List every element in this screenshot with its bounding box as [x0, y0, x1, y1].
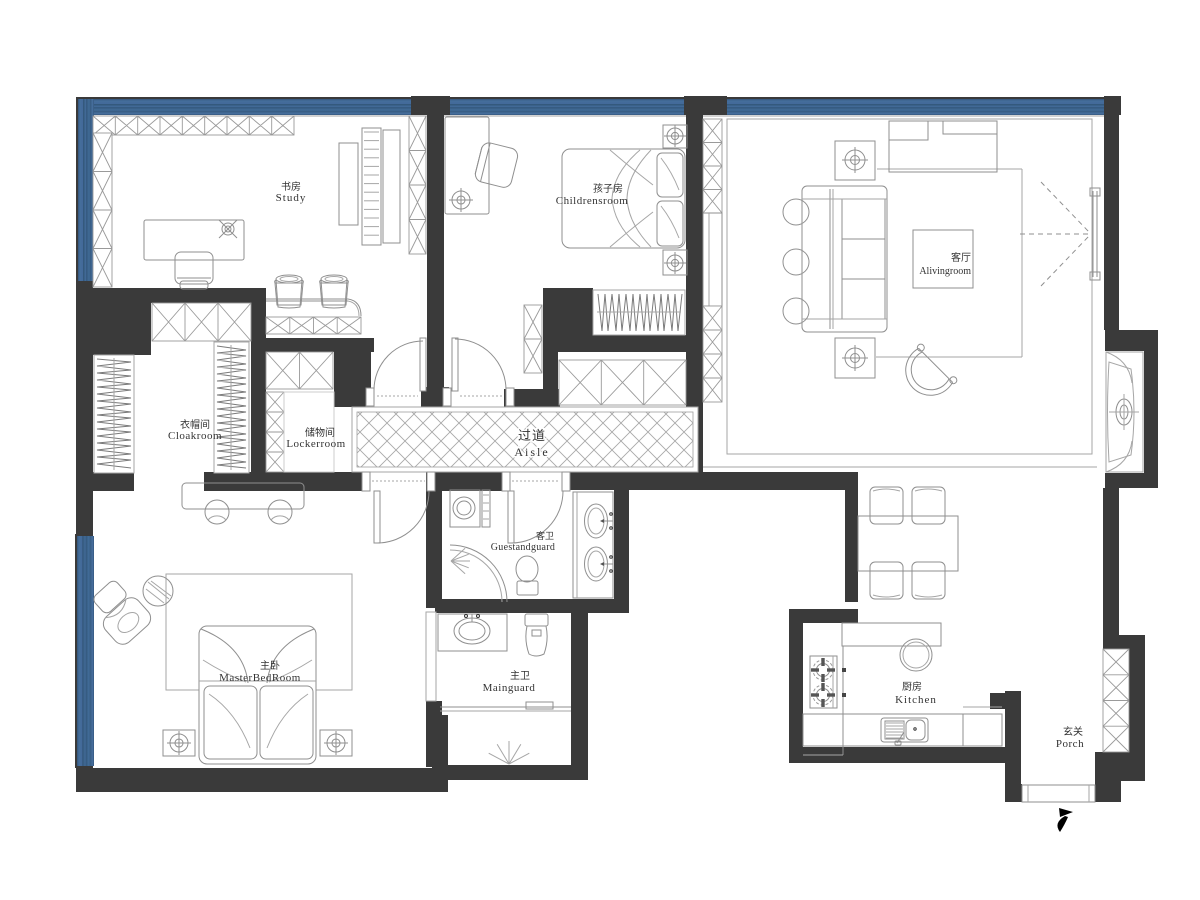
- svg-text:MasterBedRoom: MasterBedRoom: [219, 672, 301, 684]
- svg-text:Aisle: Aisle: [514, 445, 549, 459]
- svg-text:Alivingroom: Alivingroom: [919, 266, 971, 277]
- svg-text:Childrensroom: Childrensroom: [556, 195, 629, 207]
- svg-text:厨房: 厨房: [902, 680, 922, 693]
- svg-text:客卫: 客卫: [536, 530, 554, 541]
- svg-text:Porch: Porch: [1056, 738, 1084, 750]
- svg-text:主卧: 主卧: [260, 659, 280, 672]
- svg-text:过道: 过道: [518, 428, 546, 443]
- svg-text:主卫: 主卫: [510, 670, 530, 682]
- svg-text:孩子房: 孩子房: [593, 182, 623, 195]
- svg-text:Lockerroom: Lockerroom: [286, 438, 345, 450]
- svg-text:Kitchen: Kitchen: [895, 694, 937, 706]
- svg-text:玄关: 玄关: [1063, 725, 1083, 738]
- svg-text:Mainguard: Mainguard: [483, 682, 536, 694]
- svg-text:Guestandguard: Guestandguard: [491, 542, 555, 553]
- svg-text:Study: Study: [276, 192, 307, 204]
- svg-text:Cloakroom: Cloakroom: [168, 430, 222, 442]
- svg-text:客厅: 客厅: [951, 251, 971, 264]
